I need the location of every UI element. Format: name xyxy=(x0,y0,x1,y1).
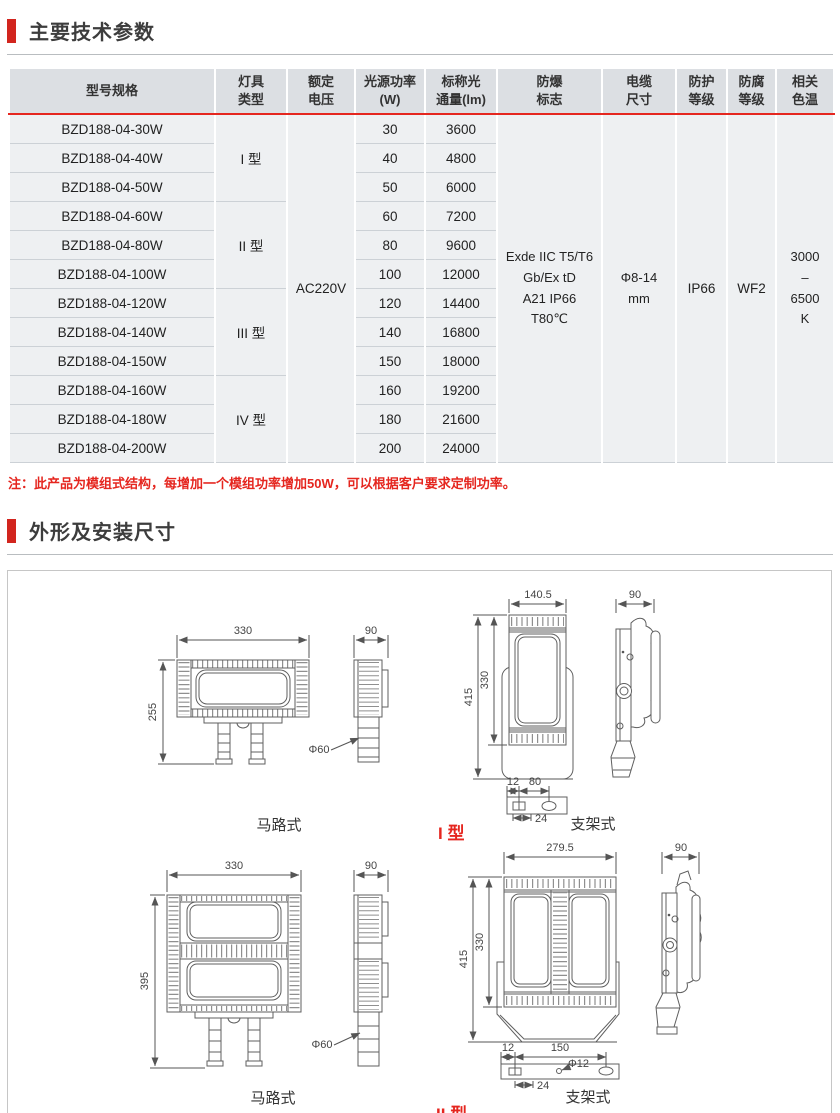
flux-cell: 12000 xyxy=(425,260,497,289)
cable-cell: Φ8-14 mm xyxy=(602,114,676,463)
model-cell: BZD188-04-100W xyxy=(9,260,215,289)
type2-bracket-side-view: 90 xyxy=(656,842,701,1034)
flux-cell: 14400 xyxy=(425,289,497,318)
model-cell: BZD188-04-60W xyxy=(9,202,215,231)
col-header-flux: 标称光 通量(lm) xyxy=(425,69,497,114)
flux-cell: 16800 xyxy=(425,318,497,347)
flux-cell: 7200 xyxy=(425,202,497,231)
flux-cell: 6000 xyxy=(425,173,497,202)
dim-type2-plate-12: 12 xyxy=(502,1042,514,1054)
dim-type1-bracket-side-width: 90 xyxy=(629,589,641,601)
dim-type1-bracket-width: 140.5 xyxy=(524,589,552,601)
table-row: BZD188-04-30WI 型AC220V303600Exde IIC T5/… xyxy=(9,114,834,144)
dim-type1-plate-80: 80 xyxy=(529,776,541,788)
model-cell: BZD188-04-120W xyxy=(9,289,215,318)
power-cell: 100 xyxy=(355,260,425,289)
power-cell: 150 xyxy=(355,347,425,376)
label-type2-road: 马路式 xyxy=(250,1090,295,1107)
flux-cell: 18000 xyxy=(425,347,497,376)
dim-type2-bracket-width: 279.5 xyxy=(546,842,574,854)
model-cell: BZD188-04-80W xyxy=(9,231,215,260)
dim-type2-bracket-side-width: 90 xyxy=(675,842,687,854)
model-cell: BZD188-04-30W xyxy=(9,114,215,144)
drawings-panel: 330 255 xyxy=(7,570,832,1113)
col-header-ip: 防护 等级 xyxy=(676,69,727,114)
dim-type1-road-width: 330 xyxy=(234,625,252,637)
type-cell: I 型 xyxy=(215,114,287,202)
type2-bracket-front-view: 279.5 415 330 xyxy=(436,842,619,1113)
power-cell: 60 xyxy=(355,202,425,231)
section-accent-bar xyxy=(7,519,16,543)
col-header-cable: 电缆 尺寸 xyxy=(602,69,676,114)
section-title-tech: 主要技术参数 xyxy=(29,16,155,45)
type-cell: II 型 xyxy=(215,202,287,289)
flux-cell: 24000 xyxy=(425,434,497,463)
dim-type1-plate-24: 24 xyxy=(535,813,547,825)
type1-bracket-side-view: 90 xyxy=(611,589,660,777)
model-cell: BZD188-04-200W xyxy=(9,434,215,463)
flux-cell: 19200 xyxy=(425,376,497,405)
dim-type2-road-height: 395 xyxy=(139,972,151,990)
col-header-cct: 相关 色温 xyxy=(776,69,834,114)
model-cell: BZD188-04-150W xyxy=(9,347,215,376)
model-cell: BZD188-04-50W xyxy=(9,173,215,202)
tech-params-table: 型号规格灯具 类型额定 电压光源功率 (W)标称光 通量(lm)防爆 标志电缆 … xyxy=(8,69,835,463)
col-header-corrosion: 防腐 等级 xyxy=(727,69,776,114)
dimension-drawings: 330 255 xyxy=(8,571,831,1113)
col-header-model: 型号规格 xyxy=(9,69,215,114)
section-header-dims: 外形及安装尺寸 xyxy=(7,516,833,555)
flux-cell: 21600 xyxy=(425,405,497,434)
corrosion-cell: WF2 xyxy=(727,114,776,463)
label-type1-bracket: 支架式 xyxy=(570,816,615,833)
voltage-cell: AC220V xyxy=(287,114,355,463)
power-cell: 30 xyxy=(355,114,425,144)
type1-road-front-view: 330 255 xyxy=(147,625,309,834)
dim-type2-hole-dia: Φ12 xyxy=(568,1058,589,1070)
tech-table-body: BZD188-04-30WI 型AC220V303600Exde IIC T5/… xyxy=(9,114,834,463)
ex-mark-cell: Exde IIC T5/T6 Gb/Ex tD A21 IP66 T80℃ xyxy=(497,114,602,463)
dim-type2-body-height: 330 xyxy=(474,933,486,951)
type-cell: IV 型 xyxy=(215,376,287,463)
flux-cell: 3600 xyxy=(425,114,497,144)
flux-cell: 9600 xyxy=(425,231,497,260)
label-type2-bracket: 支架式 xyxy=(565,1089,610,1106)
spec-sheet-page: 主要技术参数 型号规格灯具 类型额定 电压光源功率 (W)标称光 通量(lm)防… xyxy=(0,0,840,1113)
dim-type1-road-height: 255 xyxy=(147,703,159,721)
dim-type1-body-height: 330 xyxy=(479,671,491,689)
label-type1-road: 马路式 xyxy=(256,817,301,834)
dim-type1-plate-12: 12 xyxy=(507,776,519,788)
type2-road-side-view: 90 Φ60 xyxy=(311,860,388,1066)
type1-road-side-view: 90 Φ60 xyxy=(308,625,388,762)
dim-type2-total-height: 415 xyxy=(458,950,470,968)
model-cell: BZD188-04-40W xyxy=(9,144,215,173)
dim-type1-total-height: 415 xyxy=(463,688,475,706)
dim-type2-plate-24: 24 xyxy=(537,1080,549,1092)
power-cell: 200 xyxy=(355,434,425,463)
power-cell: 80 xyxy=(355,231,425,260)
section-accent-bar xyxy=(7,19,16,43)
dim-type2-side-width: 90 xyxy=(365,860,377,872)
dim-type1-side-width: 90 xyxy=(365,625,377,637)
power-cell: 120 xyxy=(355,289,425,318)
cct-cell: 3000 – 6500 K xyxy=(776,114,834,463)
tech-table-header-row: 型号规格灯具 类型额定 电压光源功率 (W)标称光 通量(lm)防爆 标志电缆 … xyxy=(9,69,834,114)
dim-type2-road-width: 330 xyxy=(225,860,243,872)
model-cell: BZD188-04-160W xyxy=(9,376,215,405)
section-header-tech: 主要技术参数 xyxy=(7,16,833,55)
power-cell: 40 xyxy=(355,144,425,173)
dim-type1-pole-dia: Φ60 xyxy=(308,744,329,756)
section-title-dims: 外形及安装尺寸 xyxy=(29,516,176,545)
ip-cell: IP66 xyxy=(676,114,727,463)
power-cell: 50 xyxy=(355,173,425,202)
col-header-type: 灯具 类型 xyxy=(215,69,287,114)
label-type1: I 型 xyxy=(438,823,464,843)
type1-bracket-front-view: 140.5 415 330 xyxy=(438,589,616,843)
dim-type2-pole-dia: Φ60 xyxy=(311,1039,332,1051)
model-cell: BZD188-04-140W xyxy=(9,318,215,347)
dim-type2-plate-150: 150 xyxy=(551,1042,569,1054)
col-header-voltage: 额定 电压 xyxy=(287,69,355,114)
col-header-ex_mark: 防爆 标志 xyxy=(497,69,602,114)
col-header-power: 光源功率 (W) xyxy=(355,69,425,114)
flux-cell: 4800 xyxy=(425,144,497,173)
type-cell: III 型 xyxy=(215,289,287,376)
model-cell: BZD188-04-180W xyxy=(9,405,215,434)
power-cell: 140 xyxy=(355,318,425,347)
power-cell: 160 xyxy=(355,376,425,405)
type2-road-front-view: 330 xyxy=(139,860,301,1107)
note-text: 注：此产品为模组式结构，每增加一个模组功率增加50W，可以根据客户要求定制功率。 xyxy=(8,473,833,492)
power-cell: 180 xyxy=(355,405,425,434)
label-type2: II 型 xyxy=(436,1104,467,1113)
